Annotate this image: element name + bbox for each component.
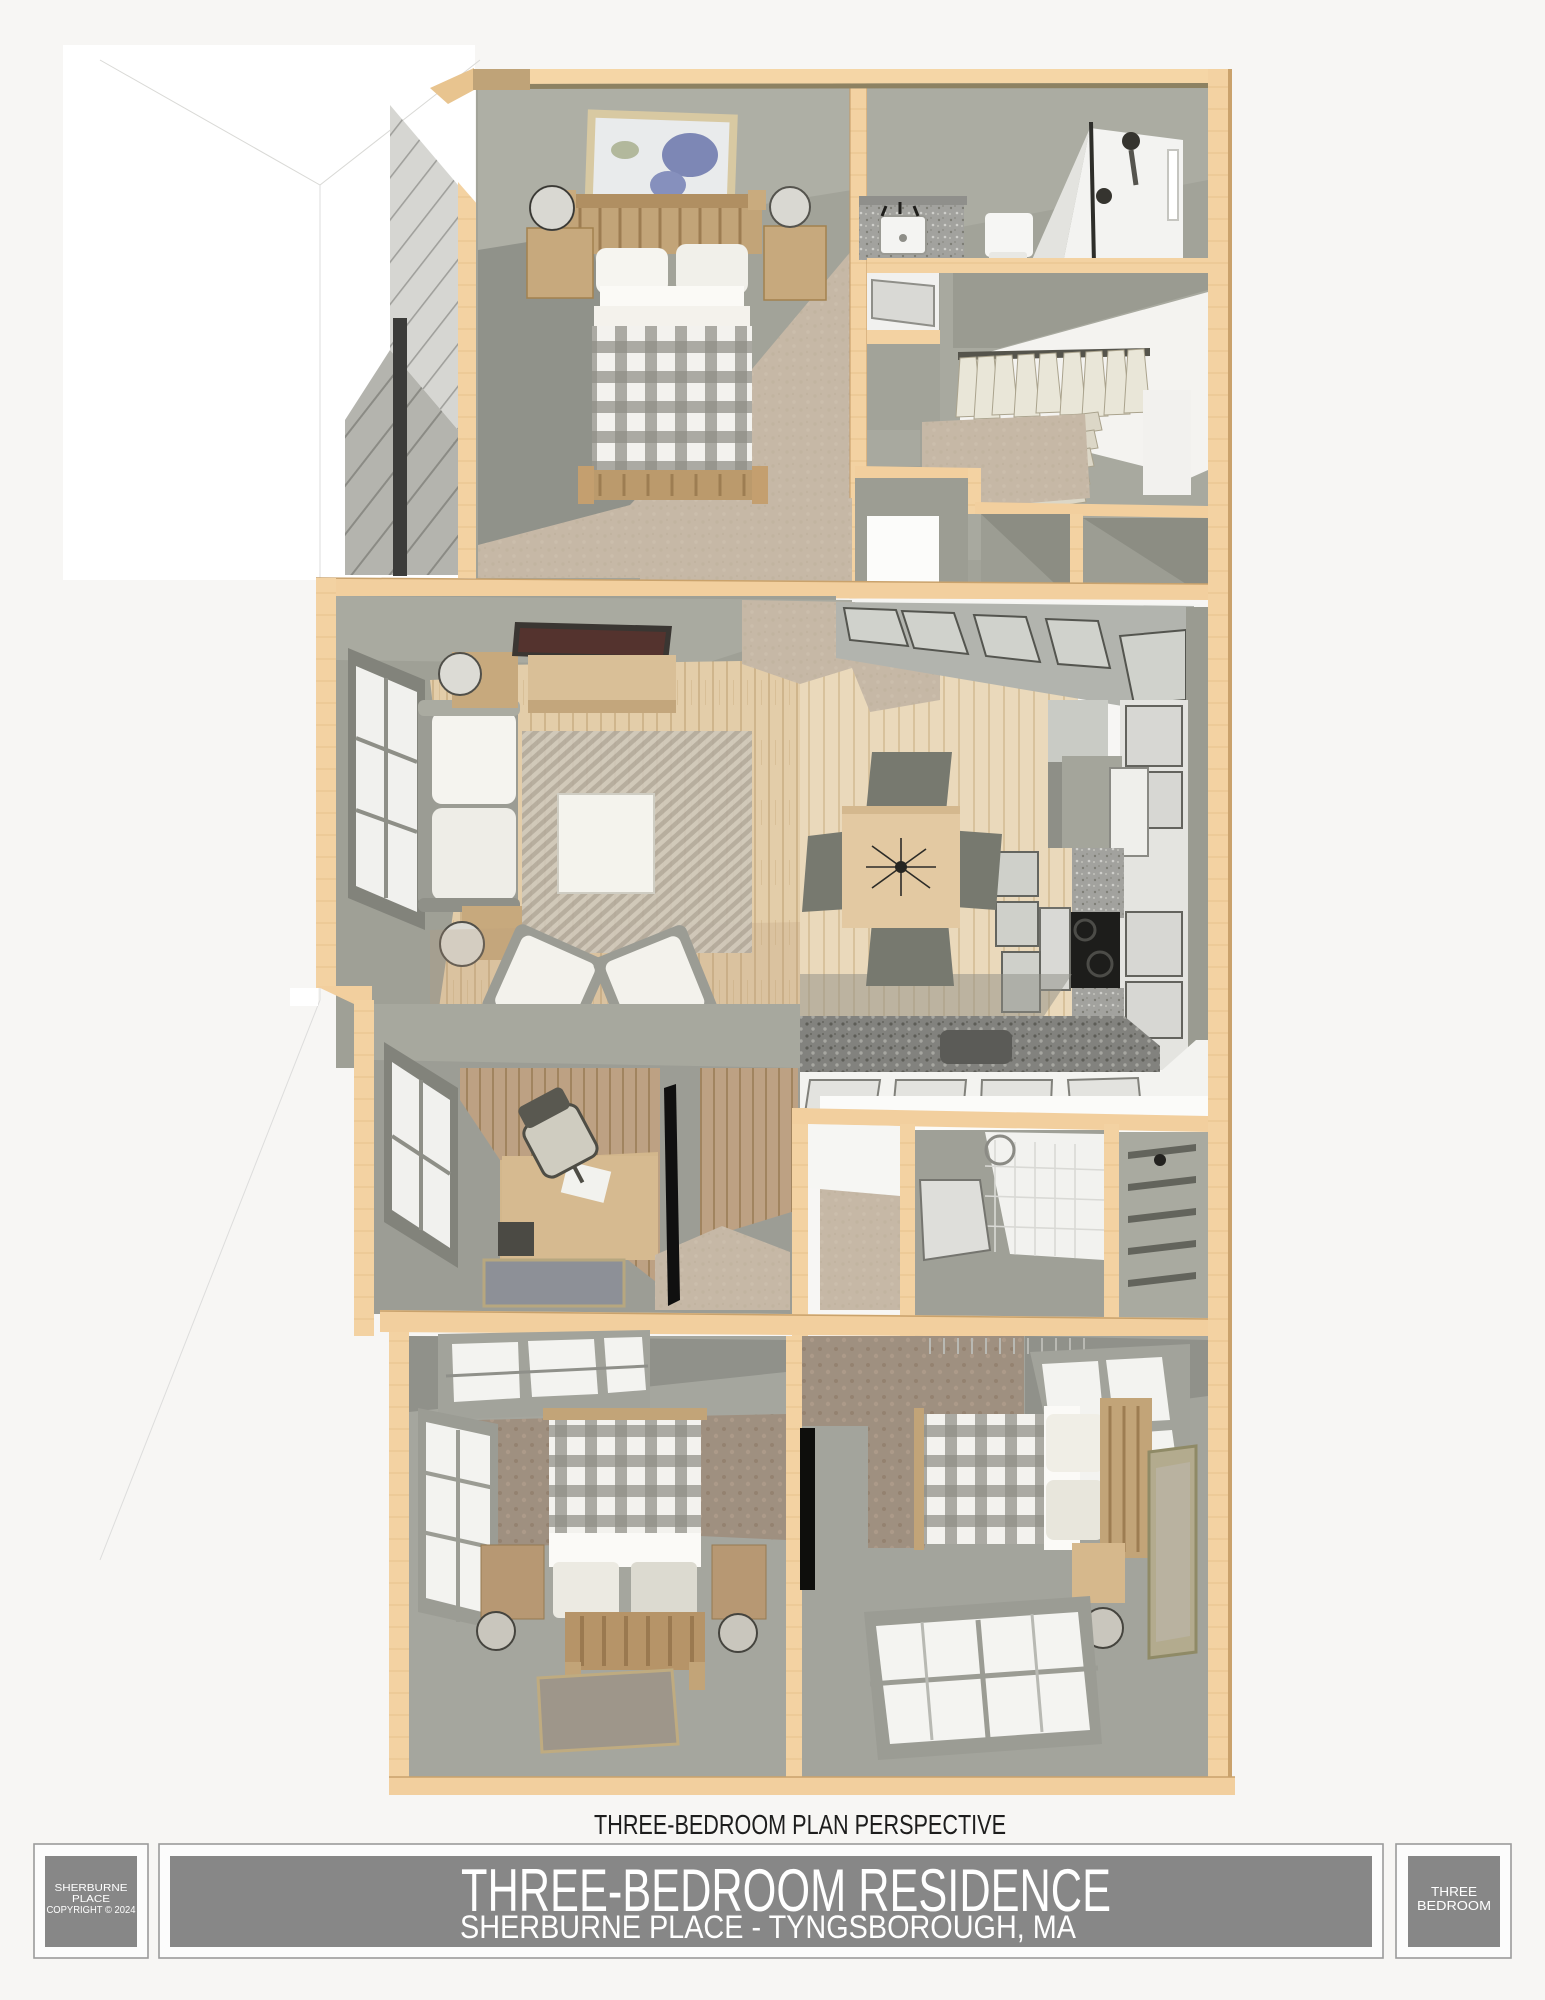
- svg-text:THREE-BEDROOM PLAN PERSPECTIVE: THREE-BEDROOM PLAN PERSPECTIVE: [594, 1809, 1006, 1840]
- svg-text:COPYRIGHT © 2024: COPYRIGHT © 2024: [47, 1904, 136, 1916]
- svg-text:SHERBURNE PLACE - TYNGSBOROUGH: SHERBURNE PLACE - TYNGSBOROUGH, MA: [460, 1909, 1077, 1945]
- svg-text:BEDROOM: BEDROOM: [1417, 1898, 1491, 1913]
- svg-text:THREE: THREE: [1431, 1884, 1477, 1899]
